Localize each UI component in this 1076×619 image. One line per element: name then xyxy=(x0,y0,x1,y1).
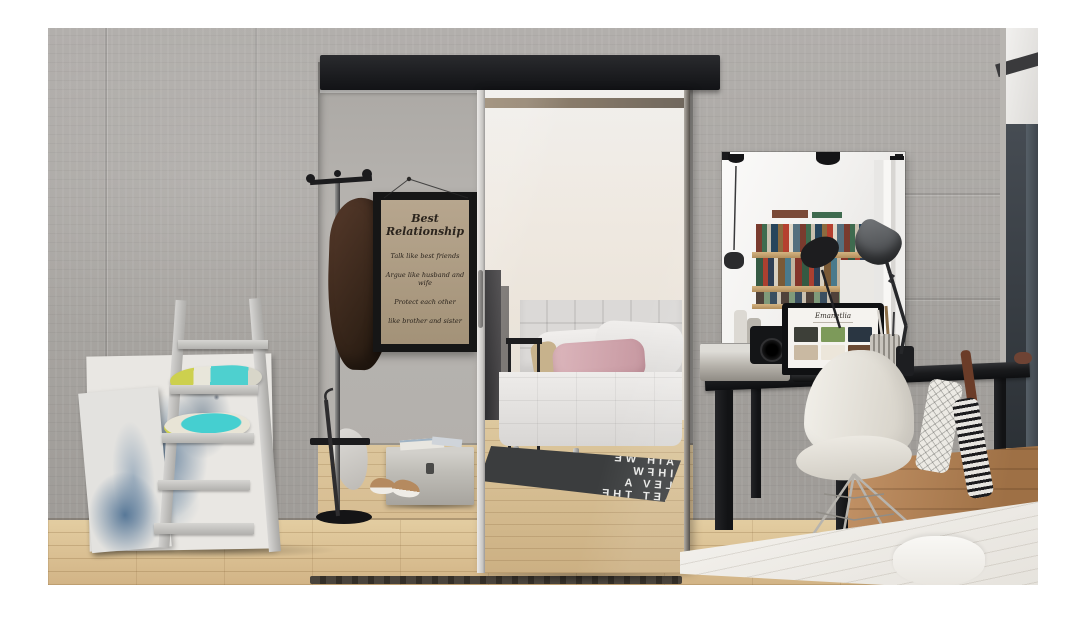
pens-in-cup xyxy=(878,306,894,336)
task-lamp-arm xyxy=(822,260,906,354)
poster-string xyxy=(384,177,468,198)
line-details-overlay xyxy=(48,28,1038,585)
lamp-cord-reflection xyxy=(734,166,736,250)
umbrella xyxy=(325,389,338,516)
interior-photo: Best Relationship Talk like best friends… xyxy=(48,28,1038,585)
bed-cushion-roll xyxy=(893,536,985,585)
